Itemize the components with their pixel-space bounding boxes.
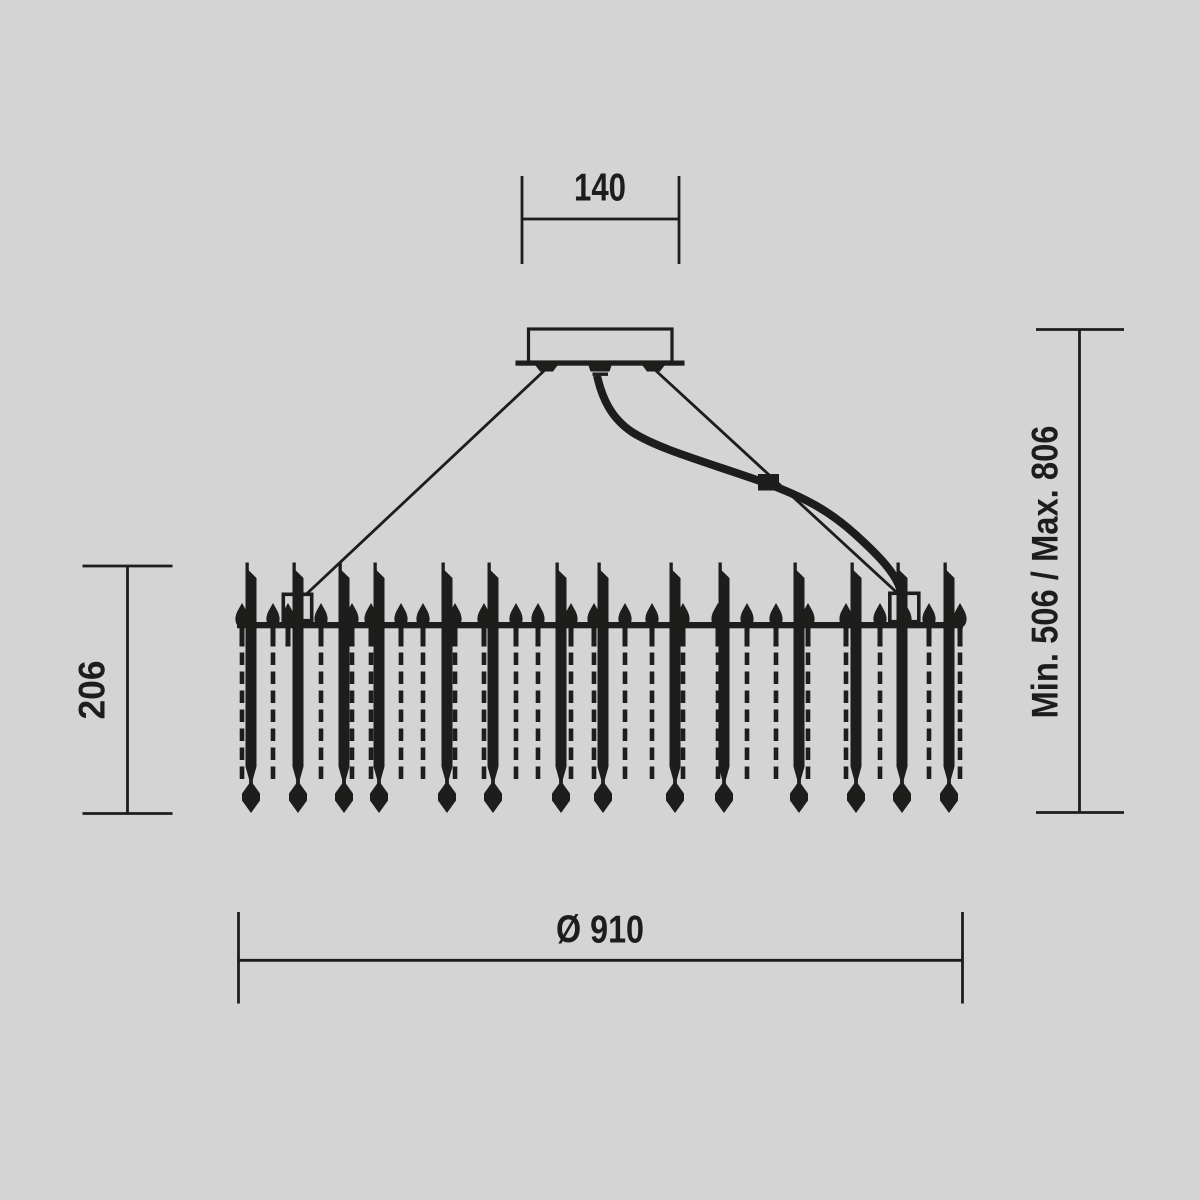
- svg-text:Min. 506 / Max. 806: Min. 506 / Max. 806: [1025, 426, 1066, 719]
- svg-text:Ø 910: Ø 910: [556, 909, 644, 952]
- svg-text:140: 140: [574, 167, 626, 210]
- svg-text:206: 206: [71, 661, 113, 720]
